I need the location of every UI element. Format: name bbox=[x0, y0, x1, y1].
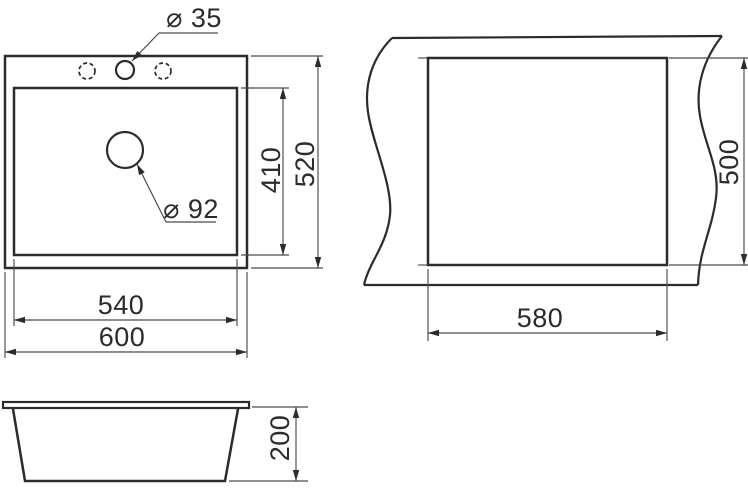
optional-hole-right bbox=[155, 63, 171, 79]
bowl-depth-label: 410 bbox=[256, 147, 286, 194]
cutout-depth-label: 500 bbox=[714, 139, 744, 186]
countertop-top-edge bbox=[392, 36, 722, 38]
dim-overall-height: 200 bbox=[229, 407, 308, 481]
faucet-hole-diameter-label: ⌀ 35 bbox=[166, 3, 222, 33]
overall-width-label: 600 bbox=[99, 322, 146, 352]
cutout-outline bbox=[428, 58, 667, 265]
technical-drawing-page: ⌀ 35 ⌀ 92 410 520 bbox=[0, 0, 748, 488]
sink-bowl-outline bbox=[14, 88, 237, 255]
countertop-cutout-view: 500 580 bbox=[364, 36, 748, 341]
drain-hole bbox=[107, 132, 143, 168]
faucet-hole bbox=[116, 61, 134, 79]
sink-top-view: ⌀ 35 ⌀ 92 410 520 bbox=[5, 3, 323, 358]
dim-cutout-width: 580 bbox=[428, 269, 667, 341]
optional-hole-left bbox=[79, 63, 95, 79]
sink-dimension-drawing: ⌀ 35 ⌀ 92 410 520 bbox=[0, 0, 748, 488]
rim-profile bbox=[3, 402, 249, 408]
cutout-width-label: 580 bbox=[517, 303, 564, 333]
drain-diameter-label: ⌀ 92 bbox=[163, 194, 219, 224]
bowl-width-label: 540 bbox=[98, 290, 145, 320]
sink-side-view: 200 bbox=[3, 402, 308, 481]
bowl-profile bbox=[13, 409, 238, 481]
overall-depth-label: 520 bbox=[290, 141, 320, 188]
overall-height-label: 200 bbox=[265, 415, 295, 462]
countertop-break-line-left bbox=[364, 38, 392, 285]
